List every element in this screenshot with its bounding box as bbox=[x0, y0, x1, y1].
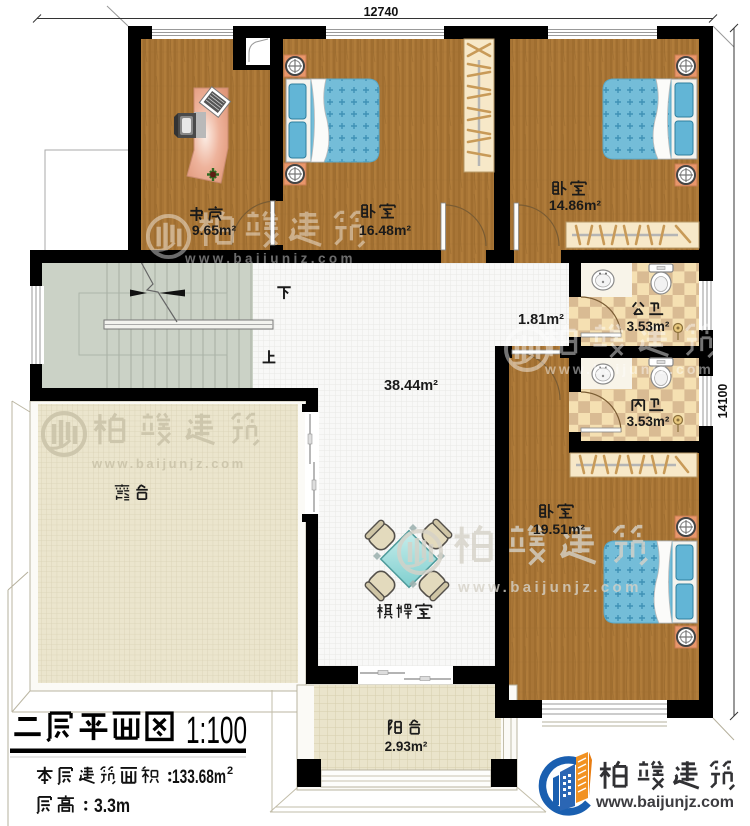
svg-text:www.baijunjz.com: www.baijunjz.com bbox=[595, 794, 734, 811]
svg-text:1.81m²: 1.81m² bbox=[518, 312, 564, 328]
svg-text:2: 2 bbox=[227, 765, 233, 777]
svg-text:19.51m²: 19.51m² bbox=[533, 521, 585, 537]
svg-text:2.93m²: 2.93m² bbox=[385, 739, 428, 754]
svg-text:9.65m²: 9.65m² bbox=[192, 222, 237, 238]
svg-text:www.baijunjz.com: www.baijunjz.com bbox=[184, 251, 356, 266]
svg-text:14.86m²: 14.86m² bbox=[549, 197, 601, 213]
svg-text:3.3m: 3.3m bbox=[94, 796, 130, 817]
svg-text:133.68m: 133.68m bbox=[172, 767, 226, 788]
svg-text:www.baijunjz.com: www.baijunjz.com bbox=[91, 456, 246, 471]
svg-text:12740: 12740 bbox=[364, 5, 399, 19]
svg-text:38.44m²: 38.44m² bbox=[384, 378, 438, 394]
svg-text:3.53m²: 3.53m² bbox=[627, 319, 670, 334]
svg-text:1:100: 1:100 bbox=[186, 710, 247, 752]
svg-text:3.53m²: 3.53m² bbox=[627, 414, 670, 429]
svg-text:www.baijunjz.com: www.baijunjz.com bbox=[544, 361, 714, 377]
svg-text:www.baijunjz.com: www.baijunjz.com bbox=[457, 579, 642, 596]
svg-text:14100: 14100 bbox=[716, 384, 730, 419]
svg-text:16.48m²: 16.48m² bbox=[359, 222, 411, 238]
